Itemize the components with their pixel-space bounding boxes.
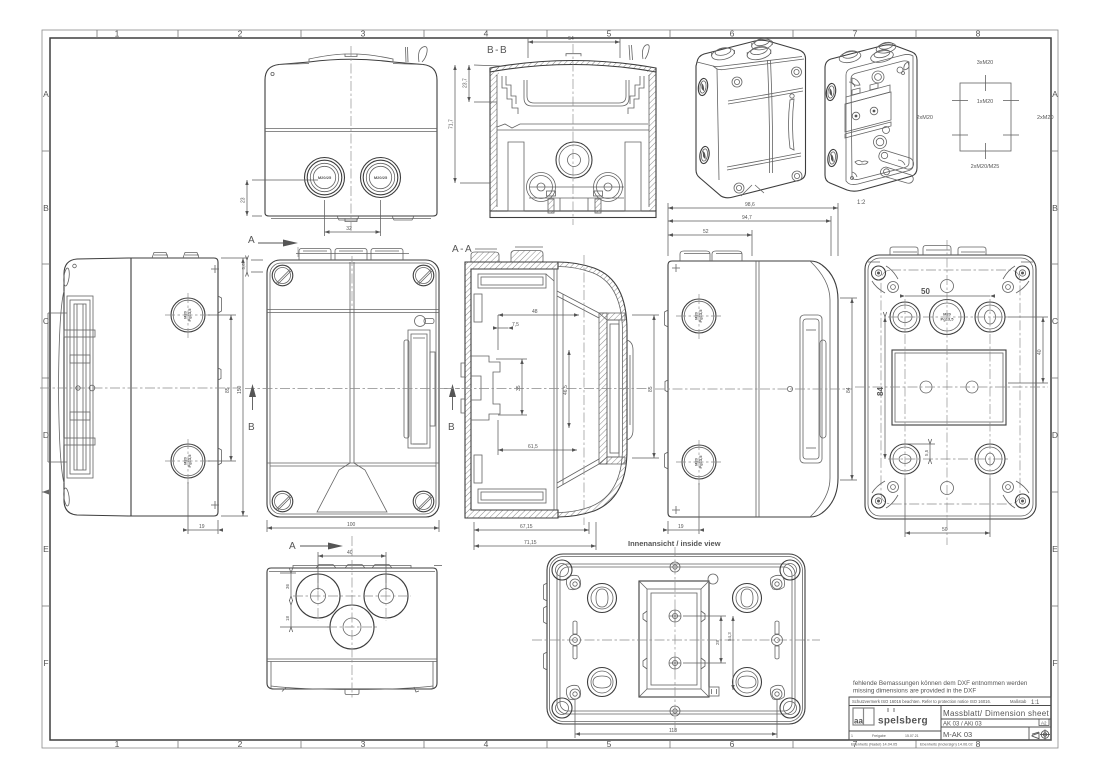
svg-text:A: A <box>43 89 49 99</box>
svg-text:19: 19 <box>678 524 684 530</box>
svg-text:5: 5 <box>607 739 612 749</box>
svg-text:85: 85 <box>225 387 231 393</box>
svg-text:M20/25: M20/25 <box>374 175 388 180</box>
svg-text:36: 36 <box>285 583 290 589</box>
svg-text:5,5: 5,5 <box>924 449 929 456</box>
svg-text:Ebenheits (Nadel) 14.04.05: Ebenheits (Nadel) 14.04.05 <box>851 743 897 747</box>
svg-text:85: 85 <box>648 386 654 392</box>
svg-text:3: 3 <box>361 739 366 749</box>
svg-text:54,3: 54,3 <box>727 632 732 641</box>
svg-text:Massblatt/ Dimension sheet: Massblatt/ Dimension sheet <box>943 709 1050 718</box>
svg-text:spelsberg: spelsberg <box>878 716 928 727</box>
svg-text:1: 1 <box>115 739 120 749</box>
svg-text:15.07.21: 15.07.21 <box>905 734 919 738</box>
svg-text:118: 118 <box>669 728 677 734</box>
svg-text:C: C <box>1052 316 1058 326</box>
svg-text:AK 03 / AKi 03: AK 03 / AKi 03 <box>943 722 982 728</box>
svg-text:fehlende Bemassungen können de: fehlende Bemassungen können dem DXF entn… <box>853 680 1028 687</box>
svg-text:6: 6 <box>730 739 735 749</box>
svg-text:19: 19 <box>199 524 205 530</box>
svg-text:71,7: 71,7 <box>449 119 455 129</box>
svg-text:50: 50 <box>921 287 930 296</box>
svg-text:46,5: 46,5 <box>563 385 569 395</box>
svg-text:23,7: 23,7 <box>463 78 469 88</box>
svg-text:94,7: 94,7 <box>742 215 752 221</box>
svg-text:84: 84 <box>846 387 852 393</box>
svg-text:7: 7 <box>853 29 858 39</box>
svg-text:5,6: 5,6 <box>241 263 246 270</box>
svg-text:6: 6 <box>730 29 735 39</box>
svg-text:1: 1 <box>851 734 853 738</box>
svg-text:2xM20/M25: 2xM20/M25 <box>971 164 1000 170</box>
svg-text:40: 40 <box>347 550 353 556</box>
svg-text:54: 54 <box>568 36 574 42</box>
svg-text:18: 18 <box>285 615 290 621</box>
svg-text:23: 23 <box>241 197 247 203</box>
svg-text:8: 8 <box>976 29 981 39</box>
svg-text:1:2: 1:2 <box>857 200 866 206</box>
svg-text:A: A <box>248 235 255 246</box>
svg-text:Freigabe: Freigabe <box>872 734 886 738</box>
svg-text:40: 40 <box>1037 349 1043 355</box>
svg-text:3xM20: 3xM20 <box>977 60 994 66</box>
svg-text:4: 4 <box>484 29 489 39</box>
svg-text:Innenansicht / inside view: Innenansicht / inside view <box>628 539 721 548</box>
svg-text:A: A <box>289 541 296 552</box>
svg-text:98,6: 98,6 <box>745 202 755 208</box>
svg-text:150: 150 <box>237 385 243 394</box>
svg-text:2: 2 <box>238 739 243 749</box>
svg-text:71,15: 71,15 <box>524 540 537 546</box>
svg-text:aa: aa <box>854 717 863 726</box>
svg-text:B: B <box>448 422 455 433</box>
svg-text:1: 1 <box>115 29 120 39</box>
svg-text:50: 50 <box>942 527 948 533</box>
svg-text:2xM20: 2xM20 <box>916 115 933 121</box>
svg-text:F: F <box>1052 658 1057 668</box>
svg-text:Maßstab: Maßstab <box>1010 699 1027 704</box>
svg-text:missing dimensions are provide: missing dimensions are provided in the D… <box>853 688 976 695</box>
svg-text:Schutzvermerk ISO 16016 beacht: Schutzvermerk ISO 16016 beachten. Refer … <box>852 699 991 704</box>
svg-text:2: 2 <box>238 29 243 39</box>
svg-text:2xM20: 2xM20 <box>1037 115 1054 121</box>
svg-text:E: E <box>43 544 49 554</box>
svg-text:A: A <box>1052 89 1058 99</box>
svg-text:52: 52 <box>703 229 709 235</box>
svg-text:1:1: 1:1 <box>1031 700 1040 706</box>
svg-text:3: 3 <box>361 29 366 39</box>
svg-text:28: 28 <box>715 639 720 645</box>
svg-text:M-AK 03: M-AK 03 <box>943 730 972 739</box>
svg-text:48: 48 <box>532 309 538 315</box>
svg-text:32: 32 <box>346 226 352 232</box>
svg-text:Ebenheits (Inclersign) 14.06.0: Ebenheits (Inclersign) 14.06.02 <box>920 743 973 747</box>
svg-text:B: B <box>43 203 49 213</box>
svg-text:F: F <box>43 658 48 668</box>
svg-text:35: 35 <box>516 385 522 391</box>
svg-text:1xM20: 1xM20 <box>977 99 994 105</box>
svg-text:4: 4 <box>484 739 489 749</box>
svg-text:61,5: 61,5 <box>528 444 538 450</box>
svg-text:B-B: B-B <box>487 45 508 56</box>
svg-text:100: 100 <box>347 522 356 528</box>
svg-text:7,5: 7,5 <box>512 322 519 328</box>
svg-text:E: E <box>1052 544 1058 554</box>
svg-text:5: 5 <box>607 29 612 39</box>
svg-text:A-A: A-A <box>452 244 473 255</box>
svg-text:B: B <box>248 422 255 433</box>
svg-text:D: D <box>1052 430 1058 440</box>
svg-text:M20/25: M20/25 <box>318 175 332 180</box>
svg-text:A2: A2 <box>1041 720 1047 725</box>
svg-text:67,15: 67,15 <box>520 524 533 530</box>
svg-text:84: 84 <box>876 387 885 396</box>
svg-text:B: B <box>1052 203 1058 213</box>
